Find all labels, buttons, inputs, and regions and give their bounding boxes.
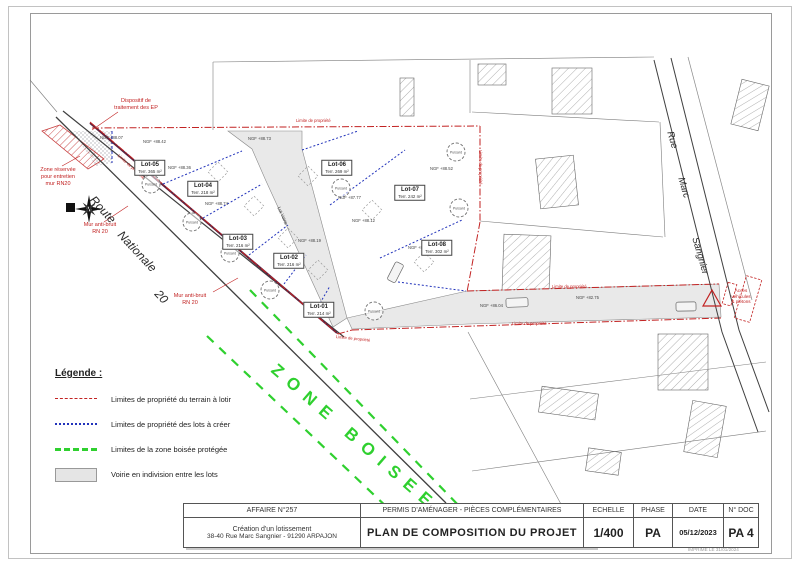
legend-item-zone-boisee: Limites de la zone boisée protégée — [55, 443, 270, 455]
lot-name: Lot-02 — [277, 255, 300, 262]
legend-title: Légende : — [55, 368, 270, 379]
legend-item-lots: Limites de propriété des lots à créer — [55, 418, 270, 430]
puisard-symbol: Puisard — [332, 179, 351, 198]
lot-label-04: Lot-04 Terr. 218 m² — [187, 181, 218, 197]
title-block-affaire-cell: AFFAIRE N°257 Création d'un lotissement … — [184, 504, 361, 547]
puisard-text: Puisard — [450, 150, 462, 154]
lot-label-01: Lot-01 Terr. 214 m² — [303, 302, 334, 318]
fine-print-line — [186, 548, 598, 550]
scale-value: 1/400 — [593, 526, 623, 540]
ngf-label: NGF +88.42 — [143, 139, 166, 144]
ngf-label: NGF +88.36 — [168, 165, 191, 170]
limite-label-driveway-top: Limite de propriété — [552, 284, 587, 289]
legend-label: Limites de propriété du terrain à lotir — [111, 395, 231, 404]
ngf-label: NGF +88.19 — [298, 238, 321, 243]
puisard-text: Puisard — [145, 182, 157, 186]
lot-name: Lot-07 — [398, 187, 421, 194]
title-block-doc-cell: PERMIS D'AMÉNAGER - PIÈCES COMPLÉMENTAIR… — [361, 504, 584, 547]
title-block: AFFAIRE N°257 Création d'un lotissement … — [183, 503, 759, 548]
project-name: Création d'un lotissement — [233, 526, 312, 533]
puisard-symbol: Puisard — [261, 281, 280, 300]
document-title: PLAN DE COMPOSITION DU PROJET — [367, 527, 577, 539]
affaire-number: AFFAIRE N°257 — [184, 504, 360, 518]
lot-label-03: Lot-03 Terr. 216 m² — [222, 234, 253, 250]
legend-item-voirie: Voirie en indivision entre les lots — [55, 468, 270, 480]
ngf-label: NGF +86.04 — [480, 303, 503, 308]
ngf-label: NGF +88.07 — [100, 135, 123, 140]
lot-area: Terr. 216 m² — [226, 243, 249, 248]
lot-area: Terr. 365 m² — [138, 169, 161, 174]
title-block-date-cell: DATE 05/12/2023 — [673, 504, 724, 547]
puisard-text: Puisard — [368, 309, 380, 313]
title-block-phase-cell: PHASE PA — [634, 504, 673, 547]
legend-label: Voirie en indivision entre les lots — [111, 470, 218, 479]
green-dashed-swatch — [55, 443, 97, 455]
puisard-text: Puisard — [453, 206, 465, 210]
compass-base-square — [66, 203, 75, 212]
document-type: PERMIS D'AMÉNAGER - PIÈCES COMPLÉMENTAIR… — [361, 504, 583, 518]
phase-value: PA — [645, 526, 661, 540]
gray-fill-swatch — [55, 468, 97, 480]
scale-label: ECHELLE — [584, 504, 633, 518]
blue-dotted-swatch — [55, 418, 97, 430]
puisard-text: Puisard — [186, 220, 198, 224]
ngf-label: NGF +82.75 — [576, 295, 599, 300]
puisard-symbol: Puisard — [447, 143, 466, 162]
lot-label-02: Lot-02 Terr. 216 m² — [273, 253, 304, 269]
date-label: DATE — [673, 504, 723, 518]
legend-label: Limites de la zone boisée protégée — [111, 445, 227, 454]
legend-item-terrain: Limites de propriété du terrain à lotir — [55, 393, 270, 405]
drawing-sheet: Dispositif de traitement des EP Zone rés… — [0, 0, 800, 565]
legend-label: Limites de propriété des lots à créer — [111, 420, 230, 429]
lot-area: Terr. 214 m² — [307, 311, 330, 316]
puisard-symbol: Puisard — [142, 175, 161, 194]
annotation-acces: Accès véhicules & piétons — [723, 288, 759, 305]
project-address: 38-40 Rue Marc Sangnier - 91290 ARPAJON — [207, 533, 337, 540]
doc-number-value: PA 4 — [728, 526, 753, 540]
limite-label-east: Limite de propriété — [478, 150, 483, 185]
ngf-label: NGF +88.12 — [352, 218, 375, 223]
legend: Légende : Limites de propriété du terrai… — [55, 368, 270, 493]
lot-label-05: Lot-05 Terr. 365 m² — [134, 160, 165, 176]
puisard-symbol: Puisard — [183, 213, 202, 232]
voirie-shared-road — [228, 131, 721, 329]
annotation-zone-reservee: Zone réservée pour entretien mur RN20 — [22, 167, 94, 188]
lot-name: Lot-06 — [325, 162, 348, 169]
lot-area: Terr. 216 m² — [277, 262, 300, 267]
lot-name: Lot-01 — [307, 304, 330, 311]
date-value: 05/12/2023 — [679, 528, 717, 537]
limite-label-top: Limite de propriété — [296, 118, 331, 123]
lot-label-08: Lot-08 Terr. 302 m² — [421, 240, 452, 256]
puisard-symbol: Puisard — [365, 302, 384, 321]
lot-label-06: Lot-06 Terr. 269 m² — [321, 160, 352, 176]
puisard-symbol: Puisard — [450, 199, 469, 218]
lot-area: Terr. 269 m² — [325, 169, 348, 174]
lot-label-07: Lot-07 Terr. 242 m² — [394, 185, 425, 201]
annotation-dispositif-ep: Dispositif de traitement des EP — [95, 98, 177, 112]
ngf-label: NGF +88.74 — [205, 201, 228, 206]
puisard-text: Puisard — [224, 251, 236, 255]
ngf-label: NGF +88.52 — [430, 166, 453, 171]
lot-name: Lot-03 — [226, 236, 249, 243]
lot-name: Lot-05 — [138, 162, 161, 169]
puisard-text: Puisard — [335, 186, 347, 190]
title-block-docnum-cell: N° DOC PA 4 — [724, 504, 758, 547]
puisard-text: Puisard — [264, 288, 276, 292]
lot-name: Lot-04 — [191, 183, 214, 190]
lot-name: Lot-08 — [425, 242, 448, 249]
lot-area: Terr. 218 m² — [191, 190, 214, 195]
doc-number-label: N° DOC — [724, 504, 758, 518]
phase-label: PHASE — [634, 504, 672, 518]
limite-label-driveway-bottom: Limite de propriété — [512, 321, 547, 326]
lot-area: Terr. 302 m² — [425, 249, 448, 254]
title-block-scale-cell: ECHELLE 1/400 — [584, 504, 634, 547]
ngf-label: NGF +88.73 — [248, 136, 271, 141]
lot-area: Terr. 242 m² — [398, 194, 421, 199]
red-dashdot-swatch — [55, 393, 97, 405]
